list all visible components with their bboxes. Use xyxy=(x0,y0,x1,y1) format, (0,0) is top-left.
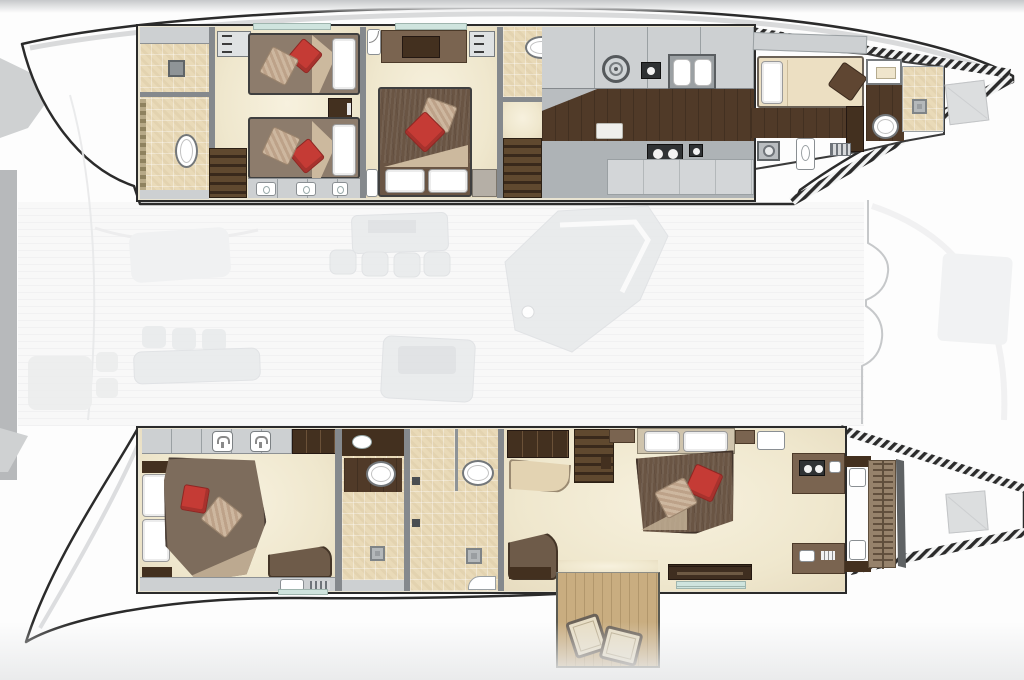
glass-partition xyxy=(455,429,458,491)
crew-cabinet xyxy=(796,138,815,170)
companionway-stairs-stbd xyxy=(574,429,614,483)
nightstand xyxy=(328,98,352,118)
vanity-forward-top xyxy=(792,453,845,494)
bathroom-divider-wall xyxy=(140,92,209,97)
port-galley xyxy=(542,27,754,198)
crew-berth xyxy=(757,56,864,108)
hanging-locker-icon xyxy=(212,431,233,452)
fixture-handle xyxy=(412,477,420,485)
hanging-wardrobe xyxy=(868,460,896,568)
twin-bed-1 xyxy=(248,33,360,95)
port-hull-interior xyxy=(136,24,756,202)
port-bow-hatch xyxy=(945,80,990,126)
shower-drain-icon xyxy=(912,99,927,114)
galley-long-counter xyxy=(607,159,754,195)
hull-window xyxy=(676,581,746,587)
white-pillow xyxy=(683,431,728,452)
wardrobe-shelf xyxy=(849,540,866,560)
galley-top-counter xyxy=(542,27,754,89)
hanging-locker-icon xyxy=(250,431,271,452)
vip-dresser xyxy=(381,30,467,63)
stbd-master-bathroom xyxy=(410,429,498,591)
vip-side-cabinet xyxy=(472,169,497,197)
hull-window xyxy=(253,23,331,30)
white-pillow xyxy=(761,61,783,104)
suite-side-cabinet xyxy=(757,431,785,450)
top-edge-band xyxy=(0,0,1024,13)
landing xyxy=(503,102,542,138)
crew-brown-cushion xyxy=(827,61,867,101)
deck-plan-canvas xyxy=(0,0,1024,680)
washer-icon xyxy=(757,141,780,161)
hull-window xyxy=(395,23,467,30)
foredeck-scallop-edge xyxy=(862,200,888,424)
white-pillow xyxy=(385,169,425,193)
vanity-counter xyxy=(140,27,209,44)
stbd-bow-hatch xyxy=(945,490,988,533)
cabin-cabinet xyxy=(292,429,336,454)
toilet-icon xyxy=(366,461,396,487)
bathroom-aft-cabinet xyxy=(140,190,209,199)
crew-washbasin xyxy=(866,59,902,85)
coat-hooks-icon xyxy=(469,31,495,57)
master-bed xyxy=(637,428,735,534)
vanity-counter xyxy=(342,429,404,456)
double-sink-icon xyxy=(668,54,716,90)
galley-walkway xyxy=(542,89,754,141)
toilet-icon xyxy=(872,114,899,139)
twin-cabin-dresser xyxy=(248,178,360,198)
hull-window xyxy=(278,589,328,595)
cutting-board xyxy=(596,123,623,139)
towel-rail xyxy=(140,99,146,193)
white-pillow xyxy=(332,38,356,90)
twin-bed-2 xyxy=(248,117,360,179)
crew-shower xyxy=(902,66,944,132)
companionway-stairs-port-mid xyxy=(503,138,542,198)
bedside-unit xyxy=(601,457,611,469)
stbd-ensuite-bathroom xyxy=(342,429,404,591)
suite-sill xyxy=(509,567,551,579)
coat-hooks-icon xyxy=(217,31,251,57)
vanity-forward-bottom xyxy=(792,543,845,574)
bedside-shelf xyxy=(735,430,755,444)
burner-icon xyxy=(602,55,630,83)
white-pillow xyxy=(332,124,356,176)
companionway-stairs-port-aft xyxy=(209,148,247,198)
shower-drain-icon xyxy=(466,548,482,564)
port-aft-bathroom xyxy=(140,27,209,198)
white-pillow xyxy=(644,431,680,452)
door-swing-icon xyxy=(367,29,381,55)
shower-drain-icon xyxy=(370,546,385,561)
toilet-icon xyxy=(462,460,494,486)
bedside-shelf xyxy=(609,429,635,443)
bottom-vignette xyxy=(0,622,1024,680)
shower-head-icon xyxy=(168,60,185,77)
oven-icon xyxy=(689,144,703,157)
shower-step xyxy=(468,576,496,590)
toilet-icon xyxy=(175,134,198,168)
side-deck-plank xyxy=(668,566,752,580)
galley-appliance-icon xyxy=(641,62,661,79)
bulkhead xyxy=(335,429,342,591)
fixture-handle xyxy=(412,519,420,527)
white-pillow xyxy=(428,169,468,193)
vip-double-bed xyxy=(378,87,472,197)
vent-grille-icon xyxy=(830,143,851,156)
suite-entry-cabinet xyxy=(507,430,569,458)
wardrobe-shelf xyxy=(849,468,866,487)
vip-bench xyxy=(366,169,378,197)
red-cushion xyxy=(180,484,210,514)
